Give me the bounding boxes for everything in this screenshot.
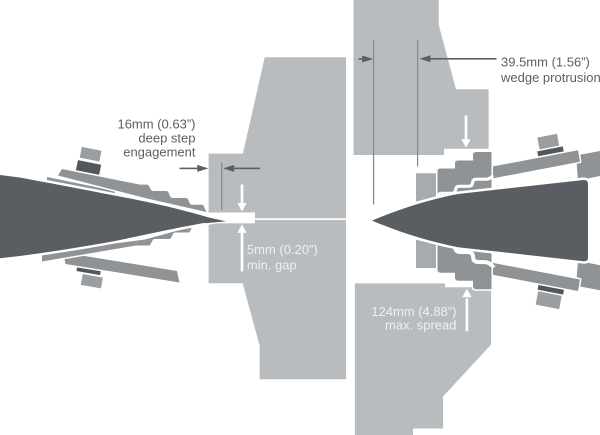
svg-text:5mm (0.20”): 5mm (0.20”) <box>247 242 318 257</box>
svg-text:wedge protrusion: wedge protrusion <box>500 70 600 85</box>
svg-text:16mm (0.63”): 16mm (0.63”) <box>117 117 195 132</box>
svg-text:deep step: deep step <box>138 131 195 146</box>
svg-text:max. spread: max. spread <box>385 317 457 332</box>
svg-text:engagement: engagement <box>123 145 196 160</box>
svg-text:min. gap: min. gap <box>247 257 297 272</box>
svg-text:39.5mm (1.56”): 39.5mm (1.56”) <box>501 55 590 70</box>
